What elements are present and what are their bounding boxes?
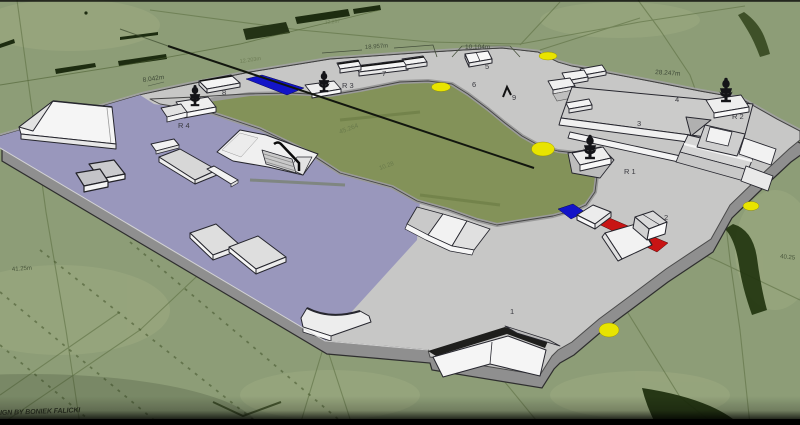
svg-text:3: 3 [637,119,641,128]
svg-text:5: 5 [485,62,489,71]
svg-text:4: 4 [675,95,679,104]
svg-text:R 3: R 3 [342,81,354,90]
svg-text:2: 2 [664,213,668,222]
svg-text:R 2: R 2 [732,112,744,121]
svg-text:7: 7 [382,69,386,78]
svg-text:8: 8 [222,88,226,97]
svg-text:R 1: R 1 [624,167,636,176]
svg-text:6: 6 [472,80,476,89]
svg-text:R 4: R 4 [178,121,190,130]
svg-text:9: 9 [512,93,516,102]
svg-text:10.104m: 10.104m [465,44,490,51]
svg-text:1: 1 [510,307,514,316]
